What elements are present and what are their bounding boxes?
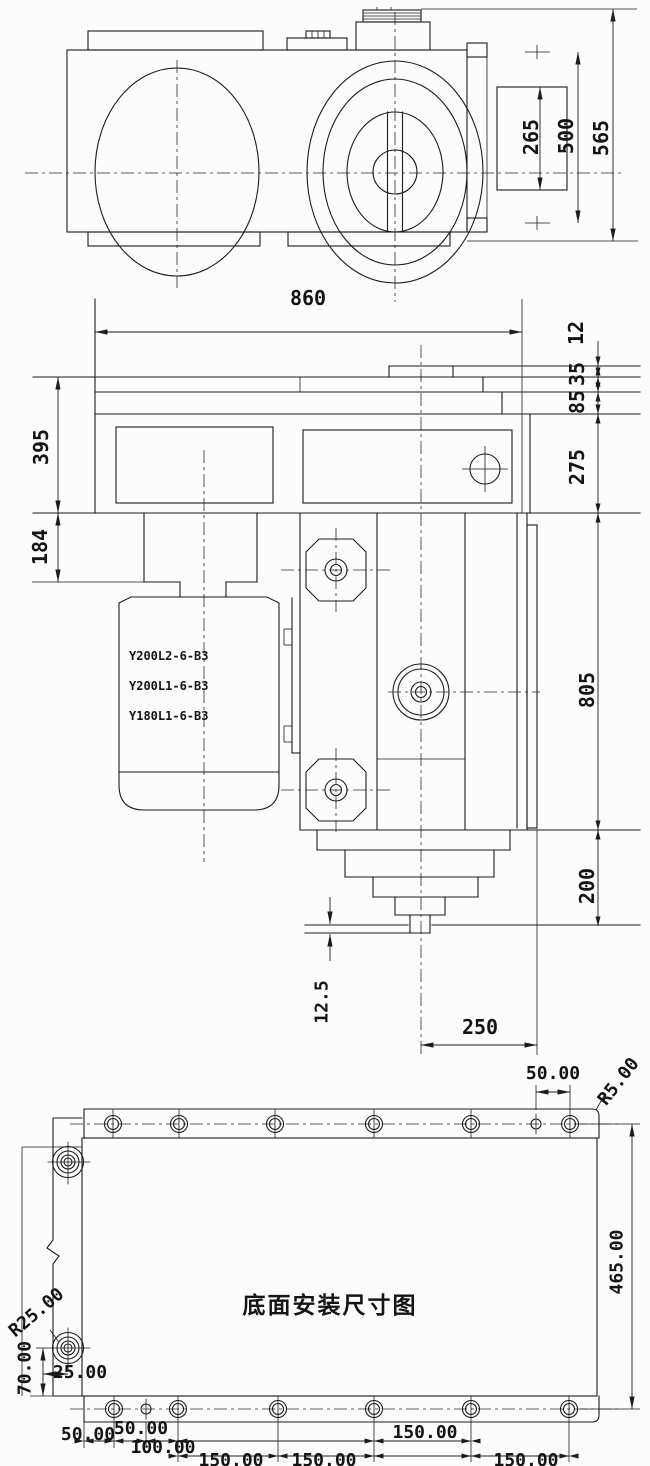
drawing-page: 265 500 565 860 395 xyxy=(0,0,650,1466)
motor-model-1: Y200L2-6-B3 xyxy=(129,649,208,663)
bottom-view: 50.00 R5.00 465.00 R25.00 70.00 25.00 底面… xyxy=(5,1054,644,1466)
dim-85: 85 xyxy=(565,390,589,414)
dim-200: 200 xyxy=(575,868,599,904)
dim-184: 184 xyxy=(28,529,52,565)
dim-150-4: 150.00 xyxy=(493,1450,558,1466)
dim-12: 12 xyxy=(564,321,588,345)
motor-model-3: Y180L1-6-B3 xyxy=(129,709,208,723)
dim-500: 500 xyxy=(554,118,578,154)
dim-150-1: 150.00 xyxy=(392,1422,457,1443)
mounting-bolt-holes xyxy=(48,1110,579,1422)
bottom-view-title: 底面安装尺寸图 xyxy=(243,1292,418,1319)
mounting-plate xyxy=(22,1109,599,1422)
inspection-window-left xyxy=(116,427,273,503)
dim-150-2: 150.00 xyxy=(198,1450,263,1466)
gearbox-engineering-drawing: 265 500 565 860 395 xyxy=(0,0,650,1466)
dim-805: 805 xyxy=(575,672,599,708)
dim-50-top: 50.00 xyxy=(526,1063,580,1084)
input-shaft-cover xyxy=(356,7,430,50)
dim-35: 35 xyxy=(565,362,589,386)
lower-bearing-boss xyxy=(281,748,391,832)
upper-bearing-boss xyxy=(281,528,391,612)
dim-50-hole: 50.00 xyxy=(114,1418,168,1439)
gear-case xyxy=(284,513,640,830)
dim-565: 565 xyxy=(589,120,613,156)
oil-sight-glass xyxy=(462,446,508,492)
dim-275: 275 xyxy=(565,449,589,485)
dim-12-5: 12.5 xyxy=(311,980,332,1023)
dim-395: 395 xyxy=(29,429,53,465)
dim-860: 860 xyxy=(290,286,326,310)
dim-r5: R5.00 xyxy=(594,1054,644,1110)
inspection-window-right xyxy=(303,430,512,503)
housing-outline xyxy=(67,50,467,232)
dim-r25: R25.00 xyxy=(5,1284,68,1342)
dim-250: 250 xyxy=(462,1015,498,1039)
motor-model-2: Y200L1-6-B3 xyxy=(129,679,208,693)
top-view: 265 500 565 xyxy=(25,7,638,302)
side-view: 860 395 184 xyxy=(28,286,640,1058)
dim-70: 70.00 xyxy=(14,1341,35,1395)
dim-25: 25.00 xyxy=(53,1362,107,1383)
gear-cover-circle xyxy=(95,68,259,276)
dim-265: 265 xyxy=(519,119,543,155)
dim-465: 465.00 xyxy=(606,1229,627,1294)
motor-bracket xyxy=(144,513,257,597)
electric-motor: Y200L2-6-B3 Y200L1-6-B3 Y180L1-6-B3 xyxy=(119,597,279,810)
dim-150-3: 150.00 xyxy=(291,1450,356,1466)
